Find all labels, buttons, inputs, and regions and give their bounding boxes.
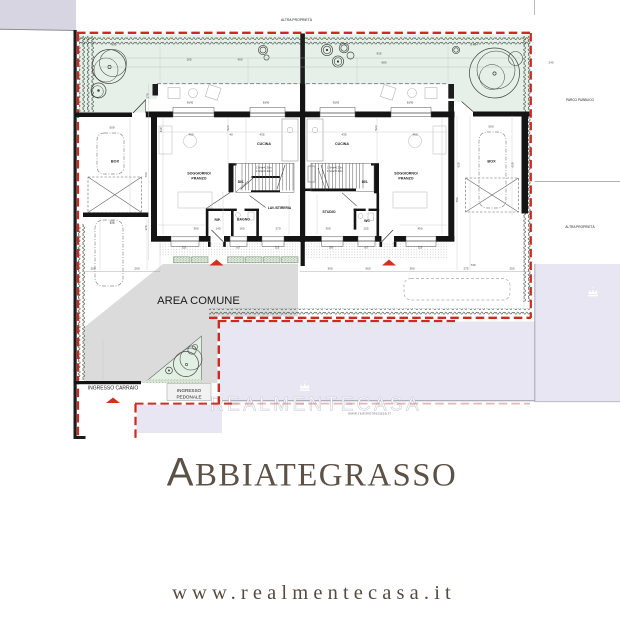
svg-text:PEDONALE: PEDONALE [176, 395, 201, 400]
svg-text:165: 165 [239, 227, 244, 231]
svg-text:450: 450 [417, 227, 422, 231]
svg-text:www.realmentecasa.it: www.realmentecasa.it [348, 412, 392, 416]
svg-text:AREA COMUNE: AREA COMUNE [157, 295, 240, 307]
svg-text:680: 680 [381, 61, 386, 65]
svg-text:275: 275 [463, 267, 468, 271]
svg-text:90/90: 90/90 [263, 101, 270, 105]
svg-text:17x4a=0.30m: 17x4a=0.30m [327, 166, 343, 170]
svg-text:P10: P10 [110, 220, 115, 224]
svg-text:STUDIO: STUDIO [322, 210, 336, 214]
svg-text:WC: WC [364, 219, 370, 223]
svg-text:315: 315 [418, 246, 423, 250]
svg-text:435: 435 [259, 133, 264, 137]
svg-text:SOGGIORNO/: SOGGIORNO/ [394, 172, 418, 176]
svg-text:DIS.: DIS. [362, 180, 369, 184]
svg-text:250: 250 [134, 267, 139, 271]
svg-text:240: 240 [548, 61, 553, 65]
svg-text:523: 523 [226, 125, 230, 130]
svg-text:90/90: 90/90 [407, 101, 414, 105]
svg-text:ALTRA PROPRIETÀ: ALTRA PROPRIETÀ [565, 225, 595, 229]
svg-text:390: 390 [193, 227, 198, 231]
svg-text:450: 450 [412, 133, 417, 137]
svg-text:INGRESSO CARRAIO: INGRESSO CARRAIO [88, 386, 139, 392]
svg-text:764: 764 [455, 197, 459, 202]
svg-text:90/90: 90/90 [333, 101, 340, 105]
svg-text:CUCINA: CUCINA [257, 142, 271, 146]
svg-text:170: 170 [146, 93, 150, 98]
svg-text:430: 430 [159, 127, 163, 132]
svg-text:630: 630 [457, 162, 461, 167]
svg-text:ALTRA PROPRIETÀ: ALTRA PROPRIETÀ [281, 18, 313, 22]
svg-text:764: 764 [144, 172, 148, 177]
svg-text:a 5: a 5 [236, 246, 240, 250]
svg-text:370: 370 [144, 225, 148, 230]
svg-text:1.484: 1.484 [470, 43, 478, 47]
svg-text:560: 560 [365, 267, 370, 271]
svg-text:310: 310 [182, 246, 187, 250]
svg-text:935: 935 [376, 52, 381, 56]
svg-text:PARCO PUBBLICO: PARCO PUBBLICO [566, 98, 595, 102]
svg-text:PRANZO: PRANZO [191, 177, 206, 181]
svg-text:630: 630 [511, 162, 515, 167]
svg-text:www.realmentecasa.it: www.realmentecasa.it [172, 582, 456, 604]
svg-text:315: 315 [275, 246, 280, 250]
svg-text:40: 40 [229, 133, 233, 137]
svg-text:250: 250 [509, 267, 514, 271]
svg-text:155: 155 [363, 227, 368, 231]
svg-text:CUCINA: CUCINA [335, 142, 349, 146]
svg-text:300: 300 [409, 267, 414, 271]
svg-text:300: 300 [327, 267, 332, 271]
svg-text:BOX: BOX [111, 160, 120, 164]
svg-text:250: 250 [90, 267, 95, 271]
svg-text:300: 300 [325, 227, 330, 231]
svg-text:BOX: BOX [487, 160, 496, 164]
svg-text:17x4a=0.30m: 17x4a=0.30m [256, 166, 272, 170]
svg-text:PRANZO: PRANZO [398, 177, 413, 181]
svg-text:INGRESSO: INGRESSO [177, 388, 202, 393]
svg-text:a 5: a 5 [364, 246, 368, 250]
svg-text:730: 730 [470, 263, 475, 267]
svg-text:140: 140 [215, 227, 220, 231]
svg-text:LAV./STIRERIA: LAV./STIRERIA [268, 206, 292, 210]
svg-text:435: 435 [341, 133, 346, 137]
svg-text:509: 509 [109, 126, 114, 130]
svg-text:523: 523 [374, 125, 378, 130]
svg-text:17x4a=0.30m: 17x4a=0.30m [256, 169, 272, 173]
svg-text:500: 500 [488, 125, 493, 129]
svg-text:300: 300 [329, 246, 334, 250]
svg-text:17x4a=0.30m: 17x4a=0.30m [327, 169, 343, 173]
svg-text:500: 500 [111, 43, 116, 47]
svg-text:450: 450 [188, 133, 193, 137]
svg-text:RIP.: RIP. [215, 218, 221, 222]
svg-text:DIS.: DIS. [238, 180, 245, 184]
svg-text:SOGGIORNO/: SOGGIORNO/ [187, 172, 211, 176]
svg-text:BAGNO: BAGNO [237, 217, 250, 221]
svg-text:270: 270 [275, 227, 280, 231]
svg-text:ABBIATEGRASSO: ABBIATEGRASSO [167, 451, 457, 495]
svg-text:90/90: 90/90 [187, 101, 194, 105]
